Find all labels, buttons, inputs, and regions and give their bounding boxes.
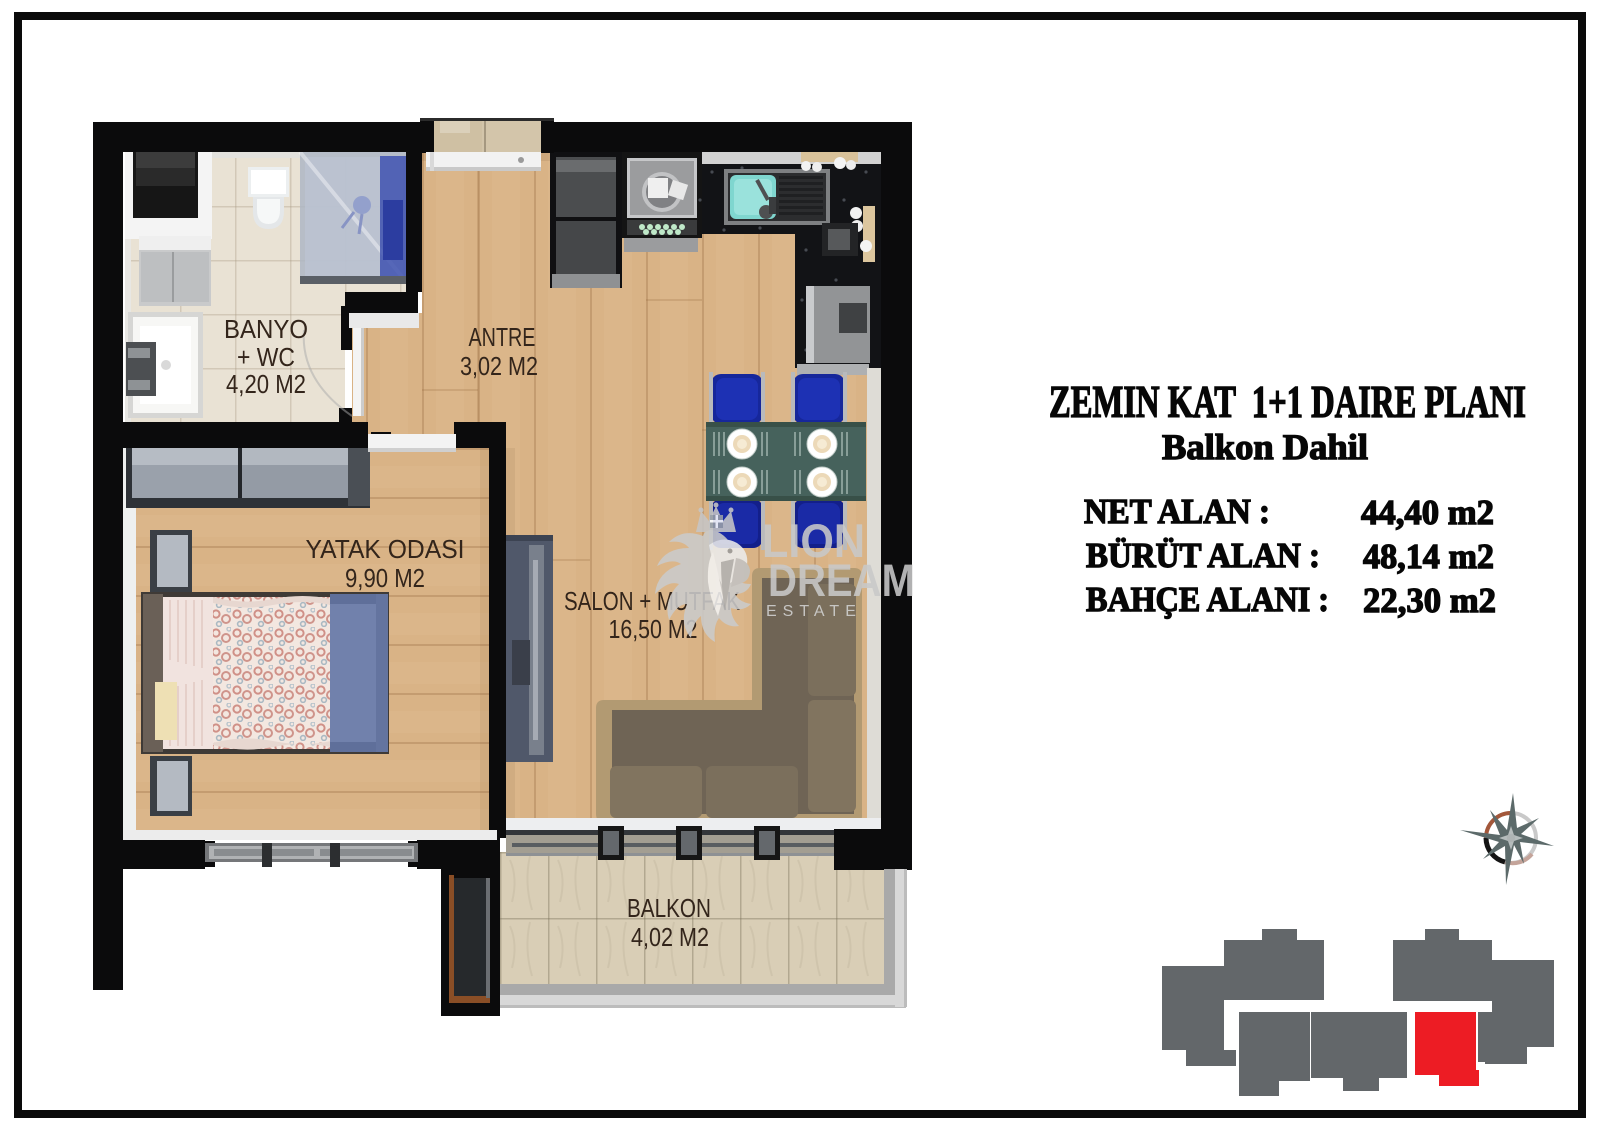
svg-text:ANTRE: ANTRE [469,322,536,352]
svg-text:ZEMIN KAT 1+1 DAIRE PLANI: ZEMIN KAT 1+1 DAIRE PLANI [1049,377,1526,427]
svg-text:4,20 M2: 4,20 M2 [226,369,306,399]
svg-text:DREAM: DREAM [768,555,915,606]
svg-text:BAHÇE ALANI :: BAHÇE ALANI : [1086,580,1329,619]
svg-text:9,90 M2: 9,90 M2 [345,563,425,593]
svg-text:YATAK ODASI: YATAK ODASI [306,534,465,564]
svg-text:Balkon Dahil: Balkon Dahil [1162,427,1368,467]
svg-text:BÜRÜT ALAN :: BÜRÜT ALAN : [1086,536,1320,575]
svg-text:BALKON: BALKON [627,893,711,923]
svg-text:44,40 m2: 44,40 m2 [1361,493,1494,532]
svg-text:48,14 m2: 48,14 m2 [1363,537,1494,576]
svg-text:NET ALAN :: NET ALAN : [1084,492,1270,531]
svg-text:+ WC: + WC [237,342,295,372]
svg-text:3,02 M2: 3,02 M2 [460,351,538,381]
svg-text:ESTATE: ESTATE [766,603,862,620]
svg-text:BANYO: BANYO [224,314,308,344]
svg-text:4,02 M2: 4,02 M2 [631,922,709,952]
svg-text:22,30 m2: 22,30 m2 [1363,581,1496,620]
